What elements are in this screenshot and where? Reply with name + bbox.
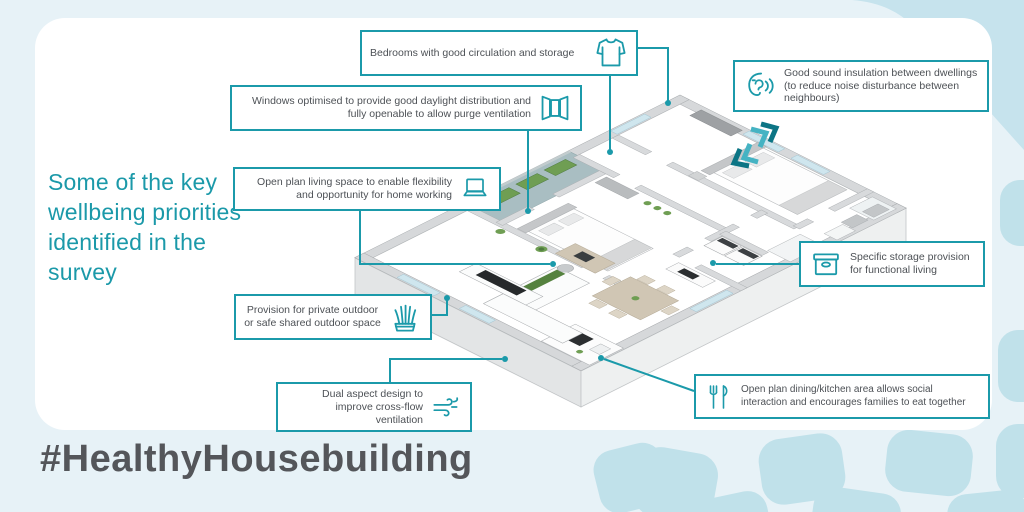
wind-icon: [430, 391, 462, 423]
cutlery-icon: [704, 382, 734, 412]
storage-box-icon: [809, 247, 843, 281]
callout-bedrooms-label: Bedrooms with good circulation and stora…: [370, 47, 587, 60]
callout-bedrooms: Bedrooms with good circulation and stora…: [360, 30, 638, 76]
callout-storage-label: Specific storage provision for functiona…: [850, 251, 975, 277]
callout-sound-insulation-label: Good sound insulation between dwellings …: [784, 67, 979, 105]
open-window-icon: [538, 91, 572, 125]
callout-storage: Specific storage provision for functiona…: [799, 241, 985, 287]
callout-open-plan-living: Open plan living space to enable flexibi…: [233, 167, 501, 211]
hashtag-text: #HealthyHousebuilding: [40, 438, 473, 481]
plant-icon: [388, 300, 422, 334]
infographic-page: Some of the key wellbeing priorities ide…: [0, 0, 1024, 512]
callout-outdoor-space: Provision for private outdoor or safe sh…: [234, 294, 432, 340]
page-title: Some of the key wellbeing priorities ide…: [48, 168, 248, 288]
callout-sound-insulation: Good sound insulation between dwellings …: [733, 60, 989, 112]
callout-open-plan-living-label: Open plan living space to enable flexibi…: [243, 176, 452, 202]
callout-dual-aspect-label: Dual aspect design to improve cross-flow…: [286, 388, 423, 426]
callout-dining-kitchen: Open plan dining/kitchen area allows soc…: [694, 374, 990, 419]
callout-dining-kitchen-label: Open plan dining/kitchen area allows soc…: [741, 384, 980, 408]
callout-windows-label: Windows optimised to provide good daylig…: [240, 95, 531, 121]
ear-listening-icon: [743, 69, 777, 103]
callout-windows: Windows optimised to provide good daylig…: [230, 85, 582, 131]
callout-dual-aspect: Dual aspect design to improve cross-flow…: [276, 382, 472, 432]
callout-outdoor-space-label: Provision for private outdoor or safe sh…: [244, 304, 381, 330]
laptop-icon: [459, 173, 491, 205]
shirt-icon: [594, 36, 628, 70]
